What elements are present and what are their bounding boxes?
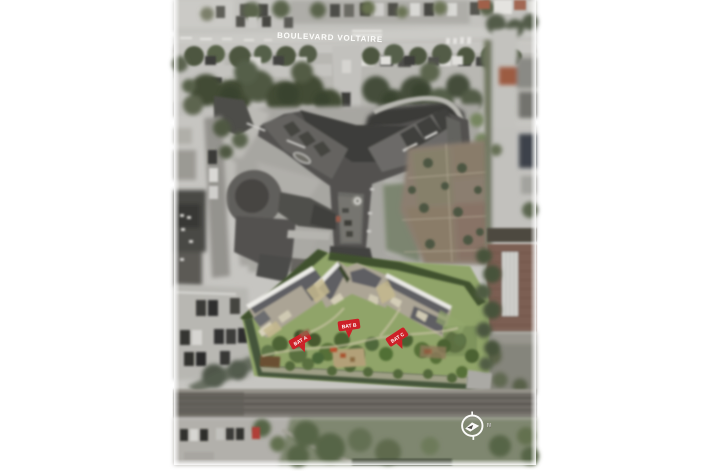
svg-text:N: N bbox=[487, 423, 491, 429]
